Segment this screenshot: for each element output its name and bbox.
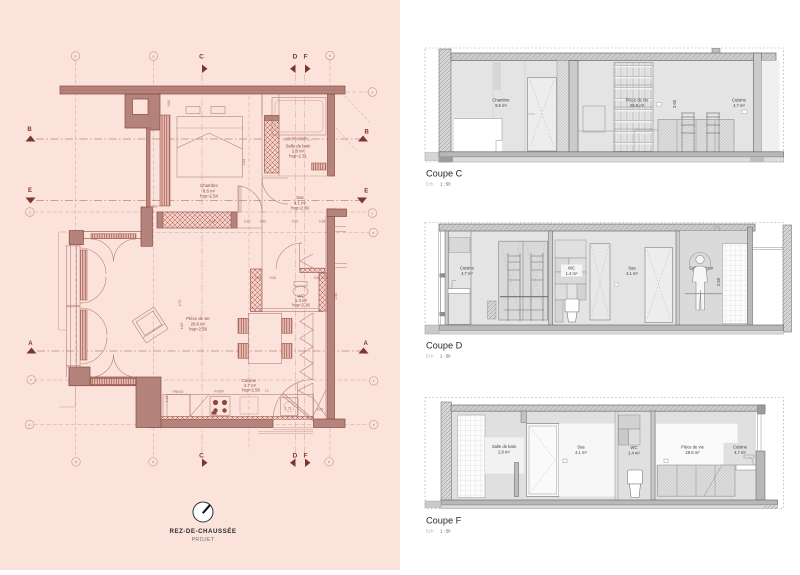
svg-text:hsp=2.31: hsp=2.31 [289,154,307,159]
svg-text:REZ-DE-CHAUSSÉE: REZ-DE-CHAUSSÉE [170,527,237,535]
svg-text:6.00: 6.00 [317,408,324,412]
svg-text:C: C [199,453,204,460]
svg-text:Coupe F: Coupe F [426,516,462,526]
svg-text:PROJET: PROJET [192,537,215,543]
svg-text:F: F [304,54,308,61]
svg-text:Sas: Sas [296,195,303,200]
svg-text:2.50: 2.50 [716,277,721,286]
svg-text:WC: WC [631,445,638,450]
svg-text:E: E [364,189,368,195]
svg-text:3.10: 3.10 [244,220,251,224]
svg-text:e: e [329,54,331,58]
svg-text:Pièce de vie: Pièce de vie [681,445,704,450]
svg-text:0.62: 0.62 [270,276,277,280]
svg-text:1 : 50: 1 : 50 [440,354,451,359]
svg-text:Cuisine: Cuisine [460,266,475,271]
svg-text:hsp=2.30: hsp=2.30 [291,206,309,211]
svg-text:e: e [371,90,373,94]
svg-text:a: a [153,54,155,58]
svg-text:4.7 m²: 4.7 m² [733,103,745,108]
svg-text:d: d [372,231,374,235]
svg-text:Coupe C: Coupe C [426,169,463,179]
svg-text:1.73: 1.73 [285,407,292,411]
svg-text:4.7 m²: 4.7 m² [734,450,746,455]
svg-text:a: a [152,460,154,464]
svg-text:0.07: 0.07 [322,276,329,280]
svg-text:Salle de bain: Salle de bain [492,444,517,449]
svg-text:F: F [304,453,308,460]
svg-text:0.15: 0.15 [255,276,262,280]
svg-text:hsp=2.58: hsp=2.58 [189,327,207,332]
svg-text:1 : 50: 1 : 50 [440,529,451,534]
svg-text:WC: WC [568,266,575,271]
svg-text:B: B [365,130,370,136]
svg-text:e: e [328,460,330,464]
svg-text:A: A [364,341,369,347]
svg-text:2.8 m²: 2.8 m² [498,450,510,455]
svg-text:FOUR: FOUR [214,390,224,394]
svg-text:c: c [373,379,375,383]
svg-text:2.95: 2.95 [334,293,338,300]
svg-text:1.4 m²: 1.4 m² [566,271,578,276]
svg-text:4.1 m²: 4.1 m² [626,271,638,276]
svg-text:0.98: 0.98 [314,276,321,280]
svg-text:1 : 50: 1 : 50 [440,182,451,187]
svg-text:b: b [75,54,77,58]
svg-text:9.6 m²: 9.6 m² [495,103,507,108]
svg-text:FRIGO: FRIGO [173,390,184,394]
svg-text:hsp=2.54: hsp=2.54 [200,194,218,199]
svg-text:D: D [293,453,298,460]
svg-text:2.60: 2.60 [672,99,677,108]
svg-text:Sas: Sas [628,266,635,271]
svg-text:Cuisine: Cuisine [733,445,748,450]
svg-text:0.92: 0.92 [292,220,299,224]
svg-text:Chambre: Chambre [492,98,510,103]
svg-text:4.1 m²: 4.1 m² [575,450,587,455]
svg-text:Ech :: Ech : [426,354,436,359]
svg-text:29.8 m²: 29.8 m² [685,450,700,455]
svg-text:C: C [199,54,204,61]
svg-text:c: c [372,211,374,215]
svg-text:hsp=2.36: hsp=2.36 [292,302,310,307]
svg-text:4.7 m²: 4.7 m² [461,271,473,276]
svg-text:3.73: 3.73 [178,300,182,307]
svg-text:e: e [373,423,375,427]
svg-text:0.39: 0.39 [319,220,326,224]
svg-text:A: A [28,341,33,347]
svg-text:Cuisine: Cuisine [732,98,747,103]
svg-text:1.4 m²: 1.4 m² [628,451,640,456]
svg-text:Sas: Sas [577,445,584,450]
svg-text:hsp=2.58: hsp=2.58 [242,388,260,393]
svg-text:29.8 m²: 29.8 m² [630,103,645,108]
svg-text:9.80: 9.80 [167,100,171,107]
svg-text:cov+5vmc 07+031: cov+5vmc 07+031 [286,136,308,140]
svg-text:3.55: 3.55 [242,159,246,166]
svg-text:Chambre: Chambre [200,183,218,188]
svg-text:4.83: 4.83 [180,323,184,330]
svg-text:Coupe D: Coupe D [426,341,463,351]
svg-text:1.15: 1.15 [165,396,169,403]
svg-text:Pièce de vie: Pièce de vie [186,316,210,321]
svg-text:0.62: 0.62 [260,220,267,224]
svg-text:c: c [30,378,32,382]
svg-text:d: d [29,423,31,427]
svg-text:c: c [29,210,31,214]
svg-text:Ech :: Ech : [426,529,436,534]
svg-text:D: D [293,54,298,61]
svg-text:2.13: 2.13 [209,220,216,224]
svg-text:Ech :: Ech : [426,182,436,187]
svg-text:E: E [28,188,32,194]
svg-text:b: b [75,460,77,464]
svg-text:Pièce de vie: Pièce de vie [626,98,649,103]
svg-text:B: B [27,127,32,133]
svg-text:LL: LL [265,389,269,393]
